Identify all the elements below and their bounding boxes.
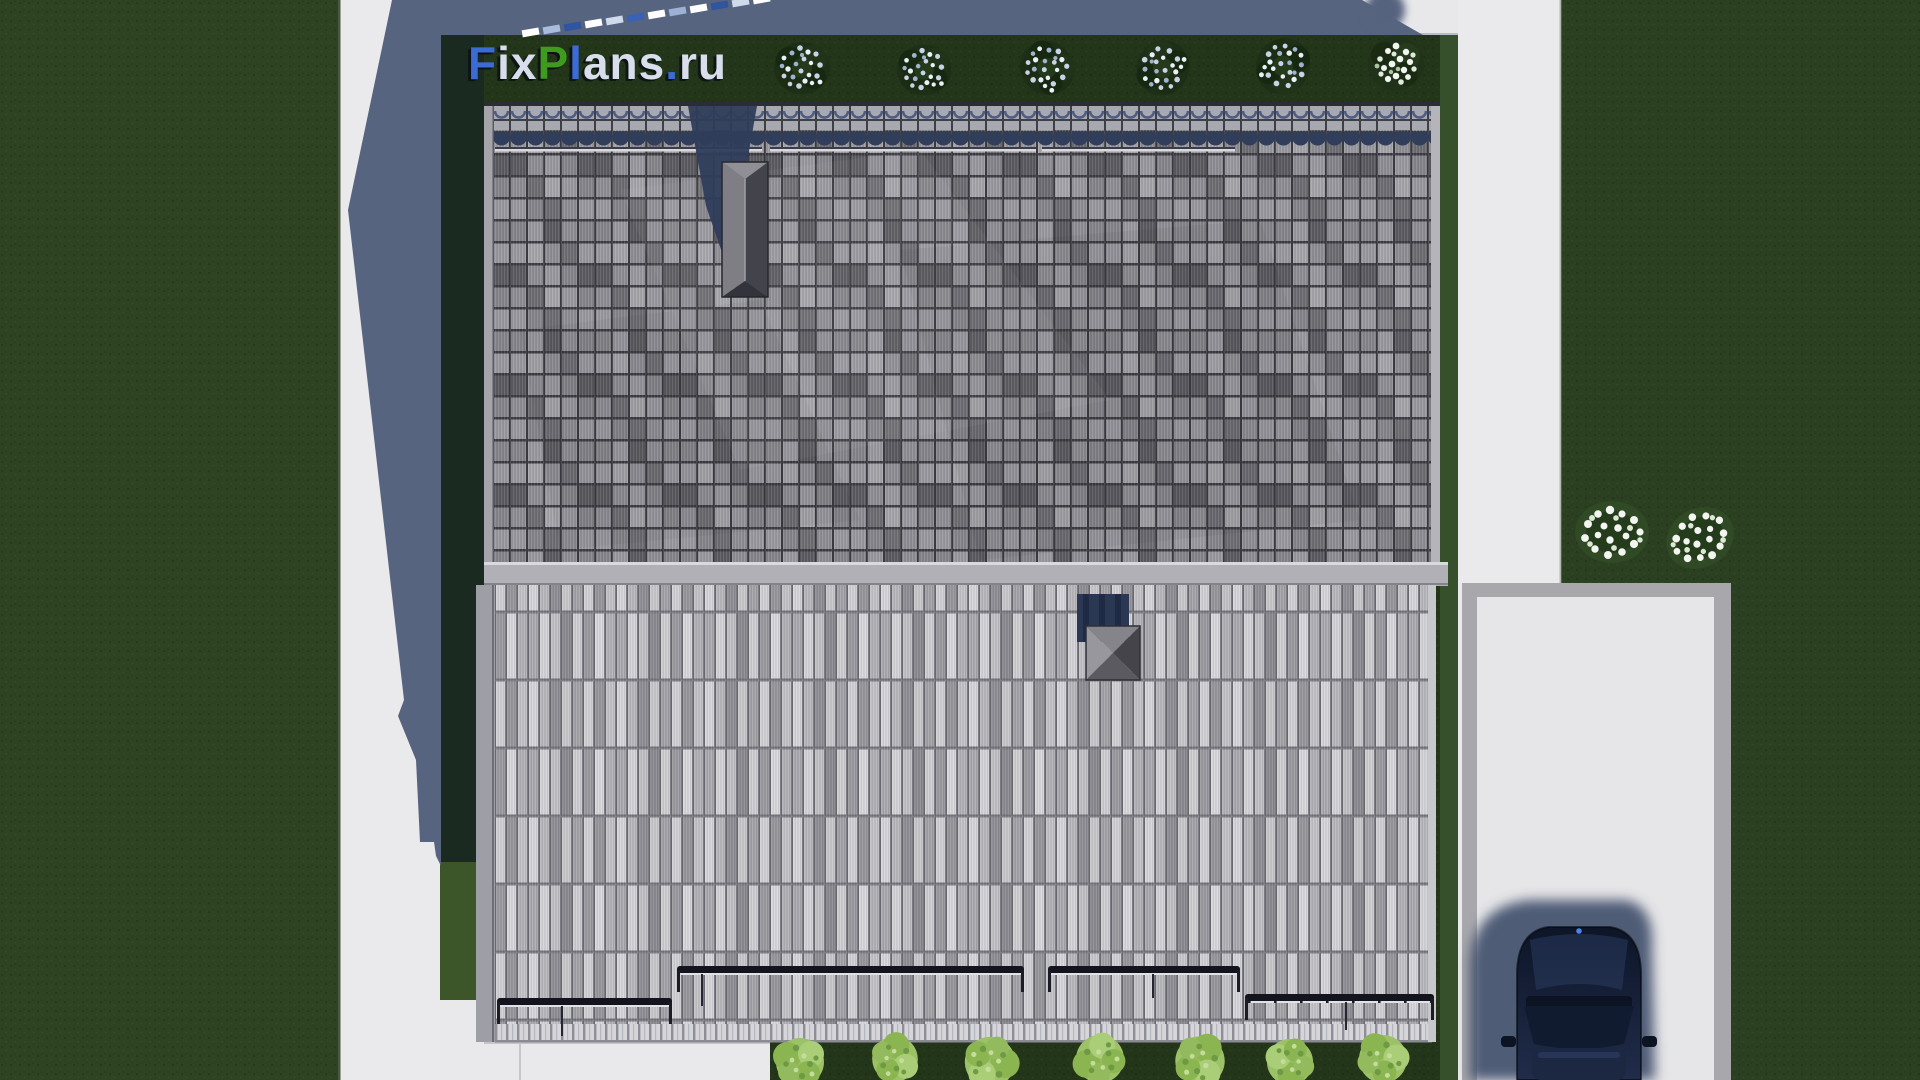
- snow-rail-upper: [495, 147, 1235, 152]
- ridge-tile-course: [484, 106, 1440, 130]
- patio-bottom: [484, 1040, 770, 1080]
- watermark-segment: .: [665, 37, 679, 89]
- upper-roof-right-trim: [1431, 106, 1440, 564]
- car-mirror-right: [1642, 1036, 1657, 1047]
- car-windshield: [1524, 1006, 1634, 1049]
- grass-strip-left: [0, 0, 341, 1080]
- tree-6-white: [1368, 37, 1424, 91]
- watermark-segment: P: [537, 37, 569, 89]
- watermark-segment: ru: [679, 37, 727, 89]
- bush-1: [773, 1038, 824, 1080]
- parked-car: [1470, 900, 1657, 1080]
- tree-1: [774, 42, 830, 94]
- scene-canvas: [0, 0, 1920, 1080]
- chimney: [722, 162, 768, 297]
- car-hood: [1530, 934, 1628, 990]
- watermark-logo: FixPlans.ru: [468, 36, 727, 90]
- roof-junction-gutter: [484, 562, 1448, 586]
- lower-roof: [476, 585, 1436, 1043]
- car-badge: [1576, 928, 1582, 934]
- upper-roof: [484, 102, 1440, 564]
- upper-roof-left-trim: [484, 106, 493, 564]
- sunlit-grass-strip-right: [1440, 35, 1458, 1080]
- watermark-segment: ix: [497, 37, 537, 89]
- car-mirror-left: [1501, 1036, 1516, 1047]
- site-plan-render: FixPlans.ru: [0, 0, 1920, 1080]
- flower-bush-1: [1575, 501, 1649, 563]
- watermark-segment: F: [468, 37, 497, 89]
- watermark-segment: l: [569, 37, 583, 89]
- watermark-segment: ans: [583, 37, 665, 89]
- lower-roof-right-trim: [1428, 585, 1436, 1042]
- tile-scallop-shadows: [484, 127, 1440, 149]
- tree-2: [897, 45, 951, 95]
